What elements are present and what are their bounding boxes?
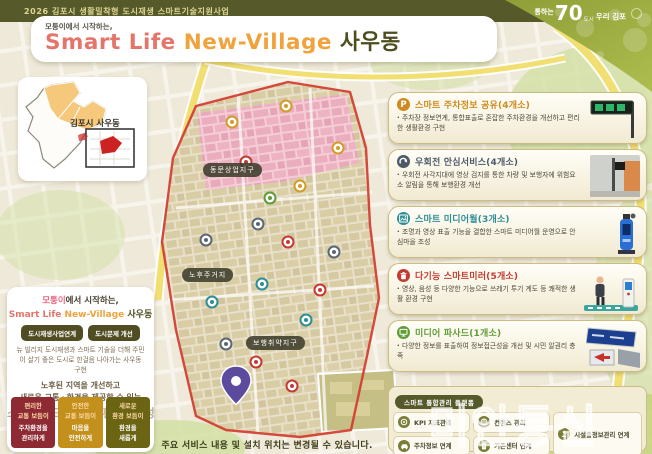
gimpo-outline-map <box>18 77 147 181</box>
locator-card: 김포시 사우동 <box>18 77 147 181</box>
service-title: 스마트 주차정보 공유(4개소) <box>415 98 530 111</box>
service-card-smart-mirror: 다기능 스마트미러(5개소) 영상, 음성 등 다양한 기능으로 쓰레기 투기 … <box>388 263 647 315</box>
logo-prefix: 통하는 <box>534 7 553 17</box>
service-card-smart-parking: P 스마트 주차정보 공유(4개소) 주차장 정보연계, 통합표출로 혼잡한 주… <box>388 92 647 144</box>
goal-safety: 안전한교통 보듬이 마음을안전하게 <box>58 397 102 448</box>
service-description: 주차장 정보연계, 통합표출로 혼잡한 주차환경을 개선하고 편리한 생활환경 … <box>397 114 581 134</box>
service-title: 우회전 안심서비스(4개소) <box>415 155 518 168</box>
program-title: 2026 김포시 생활밀착형 도시재생 스마트기술지원사업 <box>24 6 229 17</box>
media-facade-screens-illustration <box>586 326 640 370</box>
service-description: 다양한 정보를 표출하여 정보접근성을 개선 및 시민 알권리 충족 <box>397 342 581 362</box>
media-pole-illustration <box>614 212 640 256</box>
service-title: 다기능 스마트미러(5개소) <box>415 269 518 282</box>
info-buttons: 도시재생사업연계 도시문제 개선 <box>7 325 154 341</box>
right-turn-icon <box>397 155 410 168</box>
footer-note: 주요 서비스 내용 및 설치 위치는 변경될 수 있습니다. <box>102 438 432 451</box>
zone-label-commercial: 동문상업지구 <box>203 163 262 177</box>
logo-suffix: 우리 김포 <box>596 11 626 22</box>
service-card-media-facade: 미디어 파사드(1개소) 다양한 정보를 표출하여 정보접근성을 개선 및 시민… <box>388 320 647 372</box>
kpi-icon <box>398 416 410 428</box>
service-card-right-turn: 우회전 안심서비스(4개소) 우회전 사각지대에 영상 검지를 통한 차량 및 … <box>388 149 647 201</box>
page-title: Smart Life New-Village 사우동 <box>45 32 497 55</box>
zone-label-old-housing: 노후주거지 <box>182 268 233 282</box>
service-description: 우회전 사각지대에 영상 검지를 통한 차량 및 보행자에 위험요소 알림을 통… <box>397 171 581 191</box>
parking-sign-illustration <box>585 98 640 140</box>
crosswalk-camera-photo <box>590 155 640 197</box>
press-watermark: 미안통신 <box>428 390 598 454</box>
urban-regeneration-link-button[interactable]: 도시재생사업연계 <box>21 325 83 341</box>
service-card-media-wall: 스마트 미디어월(3개소) 조명과 영상 표출 기능을 결합한 스마트 미디어월… <box>388 206 647 258</box>
service-description: 조명과 영상 표출 기능을 결합한 스마트 미디어월 운영으로 안심마을 조성 <box>397 228 581 248</box>
poster: 2026 김포시 생활밀착형 도시재생 스마트기술지원사업 통하는 70 도시 … <box>0 0 652 454</box>
smart-mirror-scene-illustration <box>582 269 640 313</box>
monitor-icon <box>397 326 410 339</box>
goal-parking: 편리한교통 보듬이 주차환경을관리하게 <box>11 397 55 448</box>
trash-bin-icon <box>397 269 410 282</box>
info-subtitle: Smart Life New-Village 사우동 <box>7 307 154 320</box>
title-card: 모퉁이에서 시작하는, Smart Life New-Village 사우동 <box>31 16 497 62</box>
service-description: 영상, 음성 등 다양한 기능으로 쓰레기 투기 계도 등 쾌적한 생활 환경 … <box>397 285 581 305</box>
media-wall-icon <box>397 212 410 225</box>
urban-problem-button[interactable]: 도시문제 개선 <box>88 325 140 341</box>
parking-icon: P <box>397 98 410 111</box>
gimpo-emblem-icon <box>631 8 642 19</box>
logo-small: 도시 <box>584 15 594 23</box>
zone-label-pedestrian: 보행취약지구 <box>246 336 305 350</box>
service-title: 미디어 파사드(1개소) <box>415 326 501 339</box>
service-title: 스마트 미디어월(3개소) <box>415 212 510 225</box>
logo-number: 70 <box>555 3 583 23</box>
locator-label: 김포시 사우동 <box>70 117 120 129</box>
info-tagline: 모퉁이에서 시작하는, <box>7 294 154 306</box>
info-panel: 모퉁이에서 시작하는, Smart Life New-Village 사우동 도… <box>7 287 154 452</box>
gimpo-logo: 통하는 70 도시 우리 김포 <box>534 3 642 23</box>
info-paragraph: 뉴 빌리지 도시재생과 스마트 기술을 더해 주민이 살기 좋은 도시로 한걸음… <box>7 346 154 376</box>
